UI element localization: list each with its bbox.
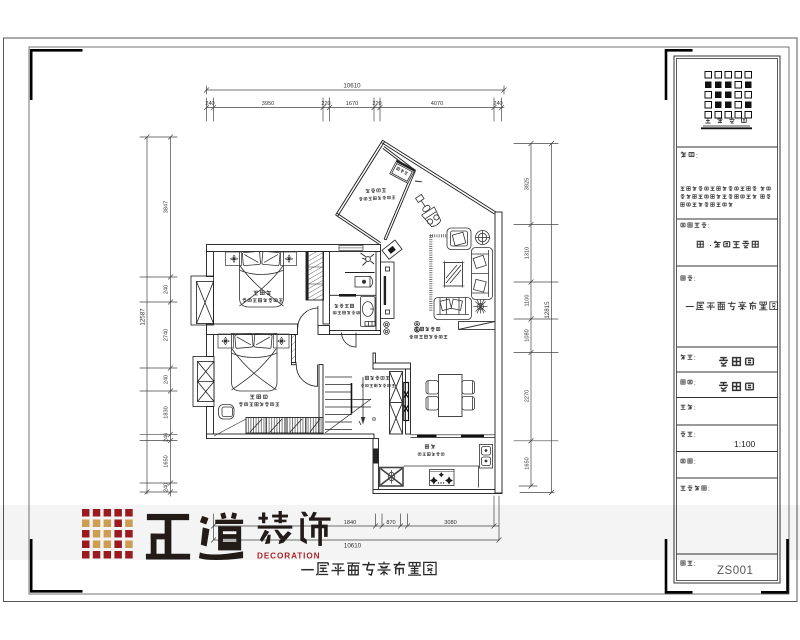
svg-text:240: 240 — [493, 101, 502, 107]
svg-text::: : — [696, 153, 698, 160]
svg-text:1310: 1310 — [525, 247, 531, 259]
svg-text:4070: 4070 — [431, 101, 443, 107]
svg-text:220: 220 — [372, 101, 381, 107]
svg-text:2740: 2740 — [164, 329, 170, 341]
svg-text:ZS001: ZS001 — [717, 565, 753, 577]
svg-text:240: 240 — [164, 433, 170, 442]
svg-text:3950: 3950 — [262, 101, 274, 107]
svg-text:12587: 12587 — [140, 308, 147, 326]
svg-text:1670: 1670 — [346, 101, 358, 107]
svg-text:·: · — [709, 241, 712, 250]
svg-text:1830: 1830 — [164, 406, 170, 418]
svg-text:3825: 3825 — [525, 178, 531, 190]
svg-text:1650: 1650 — [525, 457, 531, 469]
svg-text:240: 240 — [205, 101, 214, 107]
svg-text:10610: 10610 — [343, 83, 361, 90]
svg-text:1:100: 1:100 — [734, 439, 756, 449]
svg-text:240: 240 — [164, 285, 170, 294]
svg-text:1080: 1080 — [525, 329, 531, 341]
svg-text:2270: 2270 — [525, 390, 531, 402]
svg-text:1100: 1100 — [525, 294, 531, 306]
svg-text:240: 240 — [164, 375, 170, 384]
svg-text:220: 220 — [321, 101, 330, 107]
svg-text:3847: 3847 — [164, 201, 170, 213]
svg-text:12815: 12815 — [544, 301, 551, 319]
svg-text:1650: 1650 — [164, 455, 170, 467]
svg-text:240: 240 — [164, 483, 170, 492]
